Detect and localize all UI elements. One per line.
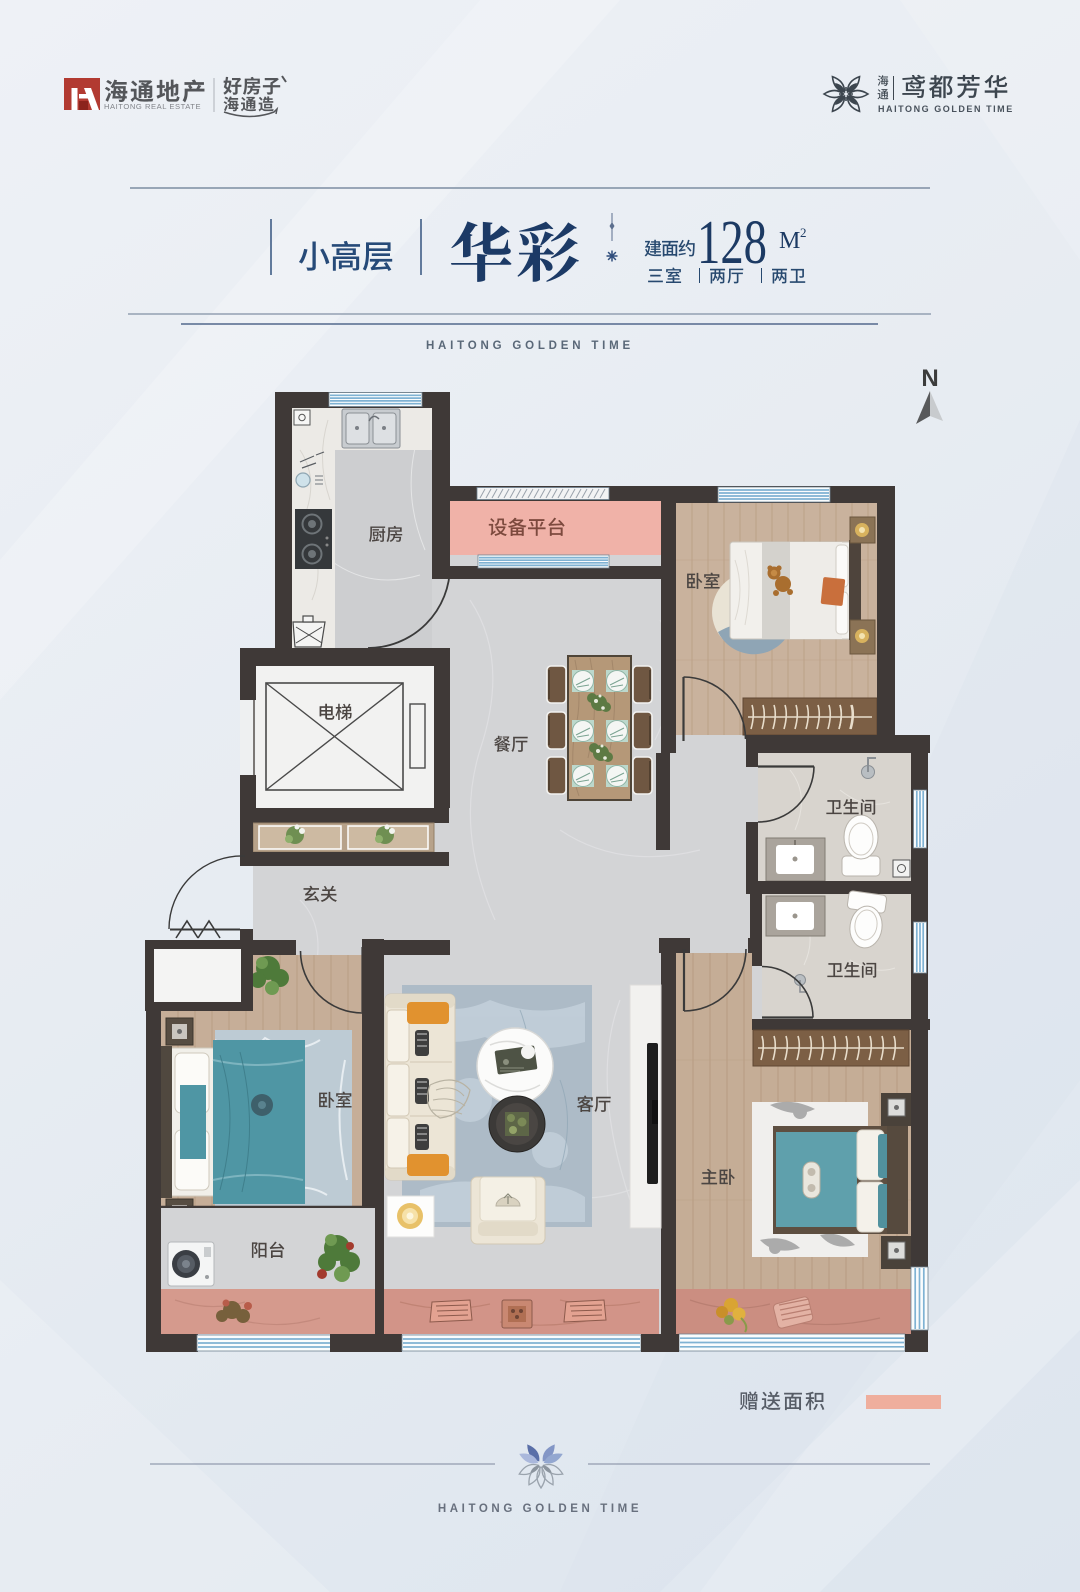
svg-text:HAITONG GOLDEN TIME: HAITONG GOLDEN TIME <box>878 104 1014 114</box>
svg-text:HAITONG GOLDEN TIME: HAITONG GOLDEN TIME <box>438 1503 642 1515</box>
svg-text:128: 128 <box>697 209 767 277</box>
svg-text:HAITONG REAL ESTATE: HAITONG REAL ESTATE <box>104 102 201 111</box>
svg-text:M: M <box>779 228 800 254</box>
svg-text:HAITONG GOLDEN TIME: HAITONG GOLDEN TIME <box>426 340 634 352</box>
svg-text:N: N <box>921 365 938 392</box>
svg-text:2: 2 <box>800 225 807 240</box>
